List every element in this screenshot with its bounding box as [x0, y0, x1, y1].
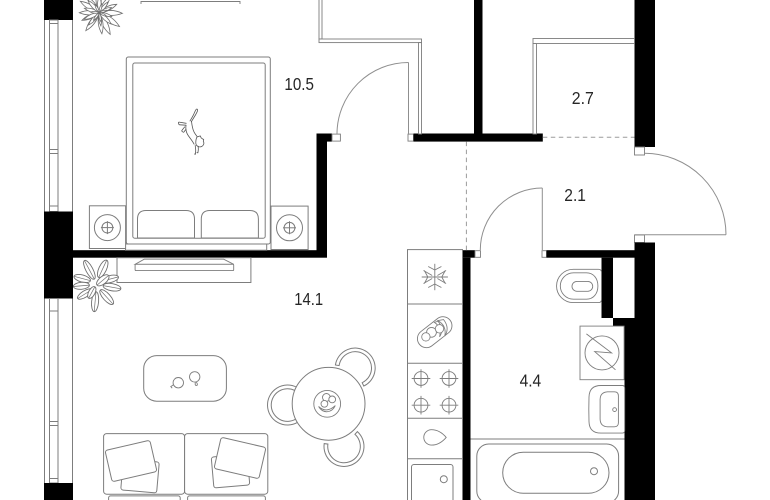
svg-text:2.7: 2.7: [572, 88, 594, 108]
svg-text:4.4: 4.4: [520, 370, 542, 390]
svg-text:10.5: 10.5: [284, 74, 314, 94]
svg-text:2.1: 2.1: [564, 185, 586, 205]
svg-text:14.1: 14.1: [294, 289, 323, 309]
